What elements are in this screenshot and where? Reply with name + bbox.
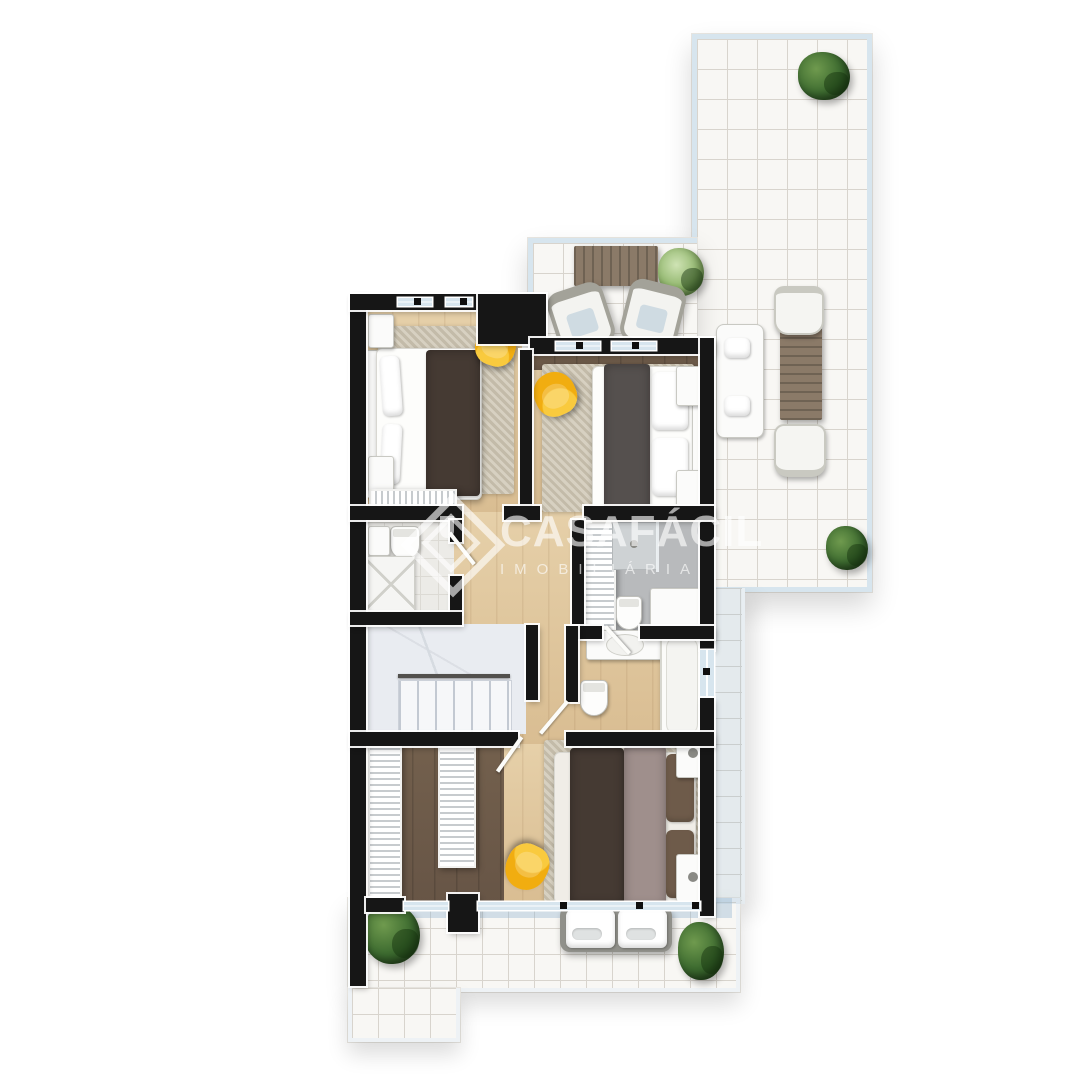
sofa-seat-pad (626, 928, 656, 940)
side-walkway-tint (714, 588, 742, 904)
sliding-door-balcony (478, 902, 700, 910)
bench-cushion (724, 396, 750, 416)
wardrobe (438, 740, 476, 868)
wall-corner-block (478, 294, 546, 344)
nightstand-lamp (688, 872, 698, 882)
watermark-subtitle: IMOBILIÁRIA (500, 561, 720, 578)
bathtub-basin (666, 636, 698, 736)
bed1-blanket (426, 350, 480, 496)
bench-cushion (724, 338, 750, 358)
watermark-text: CASAFÁCIL IMOBILIÁRIA (500, 510, 720, 578)
wall-corridor (526, 625, 538, 700)
terrace-chair-bottom (774, 424, 826, 477)
terrace-chair-top (774, 286, 824, 335)
wall-balcony-a (366, 898, 404, 912)
sofa-seat-pad (572, 928, 602, 940)
terrace-dining-table (780, 328, 822, 420)
wall-left-outer (350, 294, 366, 986)
wall-right-lower (700, 698, 714, 916)
window-marker (692, 902, 699, 909)
balcony-plant-right (678, 922, 724, 980)
logo-house-glyph (440, 516, 454, 538)
terrace-plant-bottom (826, 526, 868, 570)
window-marker (414, 298, 421, 305)
balcony-plant-left (364, 904, 420, 964)
window-marker (576, 342, 583, 349)
wall-bedroom-divider (520, 350, 532, 510)
sliding-door-balcony (404, 902, 448, 910)
wall-balcony-pillar (448, 894, 478, 932)
wall-master-top-b (566, 732, 714, 746)
wall-showerroom-bottom-b (640, 626, 714, 639)
bed3-blanket-mauve (624, 746, 666, 906)
window-marker (560, 902, 567, 909)
bed2-blanket (604, 364, 650, 512)
wall-bathroom2-left (566, 626, 578, 702)
window-bedroom1 (446, 298, 472, 306)
toilet (580, 680, 608, 716)
floorplan-canvas: CASAFÁCIL IMOBILIÁRIA (0, 0, 1080, 1080)
nightstand-lamp (688, 748, 698, 758)
wall-master-top-a (350, 732, 518, 746)
window-marker (632, 342, 639, 349)
wall-stairs-top (350, 612, 462, 625)
watermark-brand: CASAFÁCIL (500, 510, 720, 554)
stair-winders (368, 626, 488, 674)
balcony-extension-slab (348, 988, 460, 1042)
stair-treads (398, 680, 512, 734)
bed3-blanket-dark (570, 748, 624, 904)
bed1-pillow (379, 355, 403, 416)
terrace-plant-top (798, 52, 850, 100)
watermark: CASAFÁCIL IMOBILIÁRIA (400, 492, 720, 602)
window-marker (703, 668, 710, 675)
wardrobe (368, 736, 402, 906)
washbasin (368, 526, 390, 556)
window-marker (636, 902, 643, 909)
window-marker (460, 298, 467, 305)
nightstand (368, 456, 394, 492)
nightstand (368, 314, 394, 348)
stair-railing (398, 674, 510, 678)
casafacil-logo-icon (404, 496, 492, 584)
